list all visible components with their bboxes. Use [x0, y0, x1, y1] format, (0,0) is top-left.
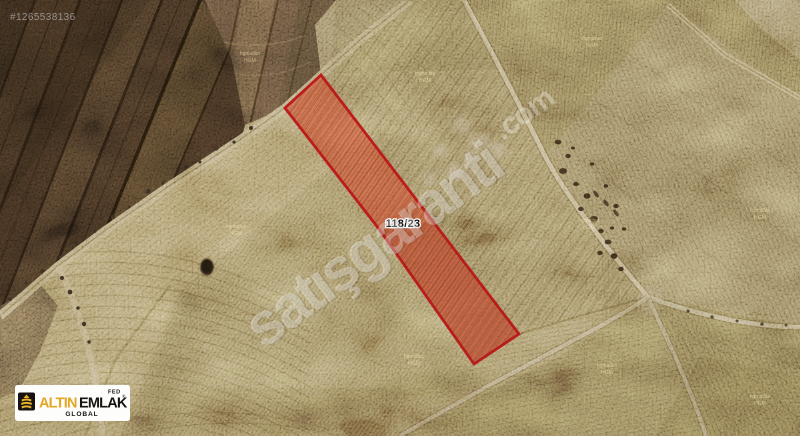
svg-text:hgmatlas: hgmatlas: [582, 36, 603, 42]
svg-text:hgmatlas: hgmatlas: [415, 71, 436, 77]
svg-text:HGM: HGM: [244, 58, 256, 64]
svg-text:GLOBAL: GLOBAL: [65, 411, 98, 418]
svg-text:HGM: HGM: [586, 43, 598, 49]
svg-text:HGM: HGM: [754, 215, 766, 221]
svg-text:hgmatlas: hgmatlas: [597, 363, 618, 369]
svg-text:HGM: HGM: [419, 78, 431, 84]
svg-text:hgmatlas: hgmatlas: [240, 51, 261, 57]
svg-text:#1265538136: #1265538136: [10, 12, 76, 23]
svg-text:EMLAK: EMLAK: [79, 396, 128, 412]
svg-text:hgmatlas: hgmatlas: [579, 218, 600, 224]
svg-text:hgmatlas: hgmatlas: [404, 354, 425, 360]
svg-text:ALTIN: ALTIN: [39, 396, 77, 412]
svg-text:hgmatlas: hgmatlas: [750, 208, 771, 214]
svg-text:HGM: HGM: [601, 370, 613, 376]
svg-text:HGM: HGM: [408, 361, 420, 367]
svg-text:FED: FED: [108, 390, 121, 396]
svg-text:hgmatlas: hgmatlas: [226, 224, 247, 230]
svg-text:hgmatlas: hgmatlas: [750, 394, 771, 400]
svg-text:HGM: HGM: [583, 225, 595, 231]
svg-text:HGM: HGM: [230, 231, 242, 237]
svg-text:HGM: HGM: [754, 401, 766, 407]
